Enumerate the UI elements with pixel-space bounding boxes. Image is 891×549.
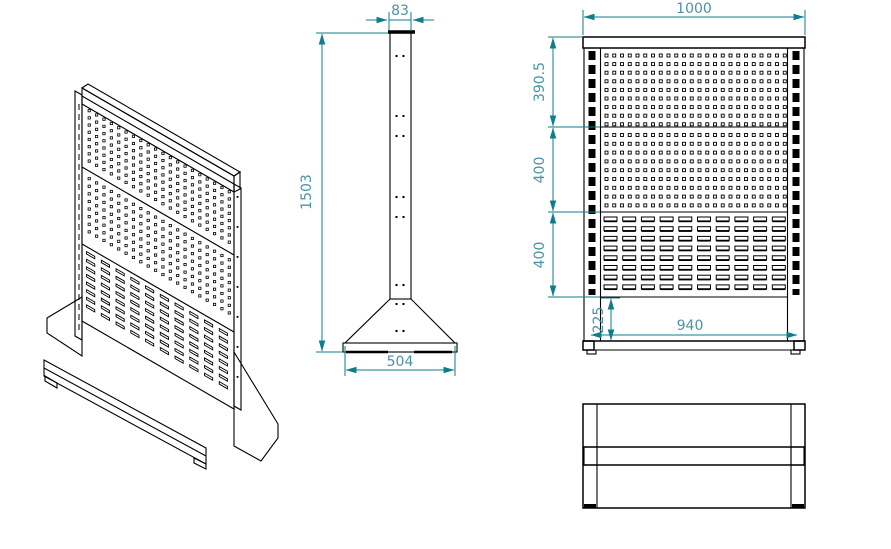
dim-83-text: 83 [391, 3, 409, 19]
technical-drawing-canvas: 83 1503 504 [0, 0, 891, 549]
front-left-foot [583, 341, 594, 350]
side-hole-dots [396, 55, 405, 332]
dim-504-text: 504 [387, 354, 414, 370]
top-right-post-section [791, 447, 804, 465]
iso-top-rail-end-cap [234, 172, 240, 192]
iso-hole-pattern [87, 110, 231, 389]
dim-225-text: 225 [591, 307, 607, 334]
top-left-foot-mark [584, 504, 596, 508]
top-right-foot-mark [792, 504, 804, 508]
side-column [390, 33, 411, 299]
dim-1503-text: 1503 [299, 174, 315, 210]
top-left-post-section [584, 447, 597, 465]
side-base-plate [343, 343, 457, 352]
iso-post-hole-dots [237, 196, 239, 378]
dim-1000-text: 1000 [676, 1, 712, 17]
iso-top-rail-top-face [82, 84, 240, 176]
top-view [583, 404, 805, 508]
drawing-sheet: 83 1503 504 [0, 0, 891, 549]
front-top-rail [583, 37, 805, 48]
side-base-trapezoid [345, 299, 455, 343]
dim-390-text: 390.5 [532, 62, 548, 102]
dim-940-text: 940 [677, 318, 704, 334]
iso-panel-divider-2 [82, 244, 234, 332]
side-view: 83 1503 504 [299, 3, 457, 376]
isometric-view [44, 84, 278, 469]
front-view: 1000 390.5 400 400 225 940 [532, 1, 805, 354]
front-right-foot [794, 341, 805, 350]
front-hole-pattern [604, 54, 786, 290]
iso-left-foot-gusset [47, 297, 82, 356]
dim-400b-text: 400 [532, 242, 548, 269]
top-view-outline [583, 404, 805, 508]
dim-400a-text: 400 [532, 157, 548, 184]
iso-front-base-bar-edge [44, 368, 206, 456]
iso-right-foot-pad [194, 458, 206, 469]
